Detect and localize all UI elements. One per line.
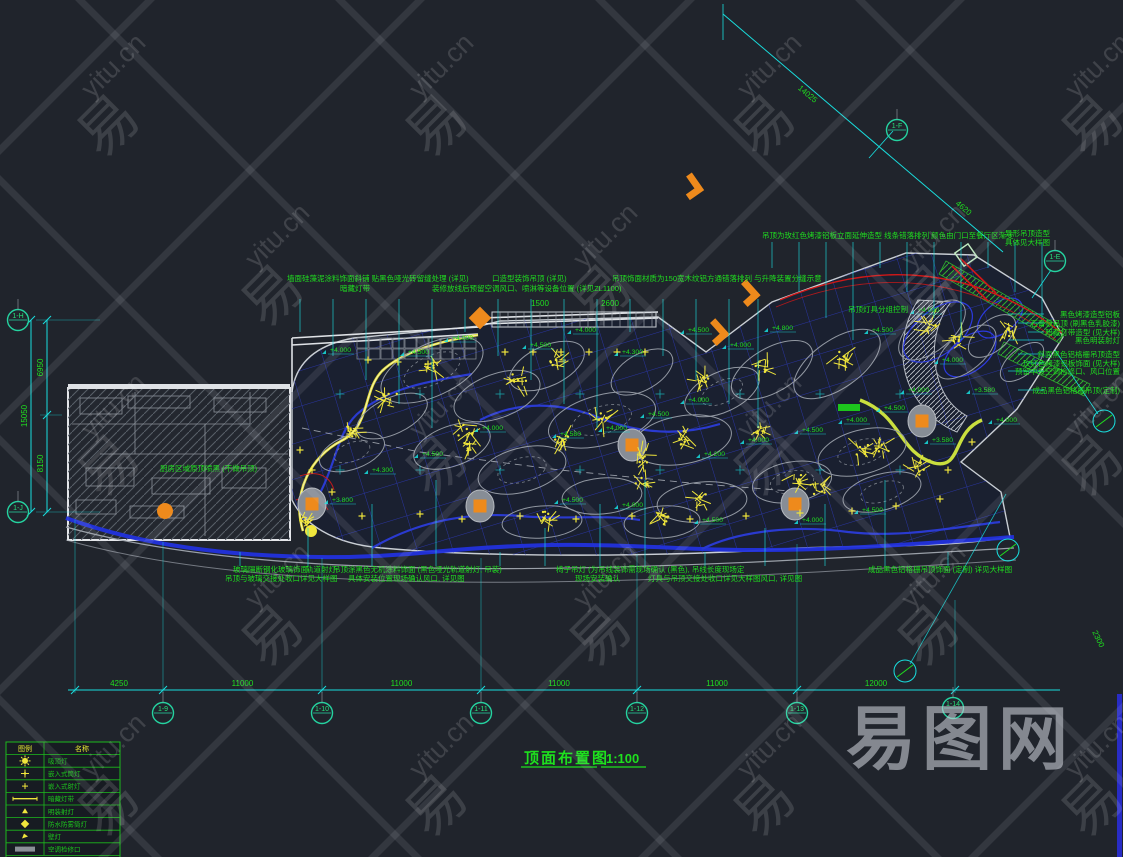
cluster-dot [667, 515, 669, 517]
cluster-dot [663, 523, 665, 525]
elevation-value: +4.800 [772, 325, 793, 332]
cluster-stroke [557, 359, 558, 367]
elevation-value: +4.500 [530, 342, 551, 349]
cluster-dot [698, 496, 700, 498]
cluster-dot [875, 447, 877, 449]
cluster-stroke [810, 484, 819, 485]
drawing-scale: 1:100 [606, 751, 639, 766]
cluster-dot [705, 380, 707, 382]
column-marker [781, 488, 809, 520]
cluster-dot [354, 429, 356, 431]
axis-bubble-label: 1-10 [315, 706, 329, 713]
cluster-dot [813, 493, 815, 495]
elevation-value: +4.000 [482, 425, 503, 432]
cluster-dot [600, 418, 602, 420]
axis-bubble-label: 1-H [12, 313, 23, 320]
ceiling-plan-drawing: 4250110001100011000110001200015050695081… [0, 0, 1123, 857]
column-marker [305, 525, 317, 537]
annotation-text: 异形吊顶造型 [1005, 228, 1050, 238]
cluster-dot [556, 441, 558, 443]
cluster-dot [635, 482, 637, 484]
cluster-stroke [759, 370, 760, 381]
annotation-text: 吊顶为玫红色烤漆铝板立面延伸造型 线条错落排列 颜色由门口至餐厅区渐变 [762, 230, 1014, 240]
cluster-dot [704, 493, 706, 495]
elevation-value: +4.500 [872, 327, 893, 334]
cluster-dot [517, 379, 519, 381]
annotation-text: 黑色明装射灯 [1075, 335, 1120, 345]
legend-label: 嵌入式射灯 [48, 782, 81, 791]
cluster-dot [547, 513, 549, 515]
cluster-dot [643, 455, 645, 457]
elevation-value: +4.500 [884, 405, 905, 412]
elevation-value: +4.300 [622, 349, 643, 356]
cluster-dot [525, 380, 527, 382]
page-title: 顶面布置图 [524, 749, 609, 767]
axis-bubble-label: 1-J [13, 505, 23, 512]
cluster-dot [346, 435, 348, 437]
cluster-dot [462, 424, 464, 426]
cluster-dot [864, 453, 866, 455]
cluster-dot [856, 453, 858, 455]
column-marker [466, 490, 494, 522]
cluster-dot [706, 374, 708, 376]
column-cap-orange [916, 415, 929, 428]
cluster-dot [683, 441, 685, 443]
cluster-dot [881, 444, 883, 446]
cluster-stroke [353, 428, 363, 429]
cluster-stroke [963, 337, 975, 338]
cluster-dot [1007, 327, 1009, 329]
elevation-value: +4.000 [606, 425, 627, 432]
elevation-value: +4.000 [908, 387, 929, 394]
cluster-dot [644, 485, 646, 487]
ceiling-lamp-icon [20, 755, 31, 766]
cluster-dot [554, 438, 556, 440]
cad-viewport: 4250110001100011000110001200015050695081… [0, 0, 1123, 857]
elevation-value: +3.580 [932, 437, 953, 444]
cluster-stroke [645, 455, 657, 456]
cluster-dot [555, 359, 557, 361]
cluster-dot [798, 478, 800, 480]
annotation-text: 斜面黑色铝格栅吊顶造型 [1038, 349, 1121, 359]
cluster-dot [920, 461, 922, 463]
cluster-dot [605, 417, 607, 419]
axis-bubble-label: 1-12 [630, 706, 644, 713]
cluster-dot [821, 490, 823, 492]
cluster-dot [665, 520, 667, 522]
elevation-value: +4.000 [846, 417, 867, 424]
axis-bubble-label: 1-F [892, 123, 903, 130]
cluster-dot [958, 336, 960, 338]
cluster-dot [351, 435, 353, 437]
cluster-dot [432, 367, 434, 369]
cluster-dot [384, 395, 386, 397]
cluster-dot [678, 438, 680, 440]
cluster-dot [549, 517, 551, 519]
cluster-dot [918, 470, 920, 472]
cluster-dot [387, 393, 389, 395]
cluster-dot [878, 450, 880, 452]
dim-label: 8150 [36, 454, 45, 472]
cluster-dot [598, 419, 600, 421]
cluster-dot [347, 426, 349, 428]
legend-label: 空调检修口 [48, 845, 81, 854]
cluster-dot [952, 340, 954, 342]
dim-label: 11000 [391, 679, 413, 688]
cluster-dot [700, 496, 702, 498]
cluster-dot [304, 519, 306, 521]
dim-label: 1500 [531, 299, 549, 308]
cluster-dot [299, 520, 301, 522]
cluster-dot [859, 446, 861, 448]
cluster-stroke [862, 448, 871, 449]
cluster-dot [432, 365, 434, 367]
annotation-text: 厨房区域原顶喷黑 (不做吊顶) [160, 463, 258, 473]
cluster-dot [471, 432, 473, 434]
elevation-value: +4.000 [452, 335, 473, 342]
axis-bubble-label: 1-E [1050, 254, 1061, 261]
elevation-value: +4.500 [862, 507, 883, 514]
equipment-marker [838, 404, 860, 411]
access-panel-icon [15, 847, 35, 852]
elevation-value: +4.500 [648, 411, 669, 418]
cluster-dot [680, 443, 682, 445]
cluster-dot [1008, 335, 1010, 337]
cluster-dot [307, 520, 309, 522]
annotation-text: 吊顶涂黑色无机涂料饰面 (黑色哑光轨道射灯, 吊装) [333, 564, 502, 574]
elevation-value: +4.300 [372, 467, 393, 474]
axis-bubble-label: 1-9 [158, 706, 168, 713]
cluster-dot [707, 377, 709, 379]
cluster-dot [843, 356, 845, 358]
cluster-dot [887, 450, 889, 452]
cluster-dot [551, 364, 553, 366]
cluster-dot [922, 469, 924, 471]
annotation-text: 灯具与吊顶交接处收口详见大样图风口, 详见图 [648, 573, 802, 583]
annotation-text: 吊顶饰面材质为150宽木纹铝方通错落排列 与升降装置分缝示意 [612, 273, 822, 283]
dim-label: 15050 [20, 404, 29, 427]
axis-bubble-label: 1-11 [474, 706, 488, 713]
elevation-value: +4.200 [704, 451, 725, 458]
cluster-dot [468, 443, 470, 445]
cluster-dot [702, 377, 704, 379]
annotation-text: 墙面硅藻泥涂料饰面斜铺 贴黑色哑光砖留缝处理 (详见) [287, 273, 469, 283]
cluster-dot [957, 340, 959, 342]
cluster-dot [683, 430, 685, 432]
elevation-value: +4.500 [688, 327, 709, 334]
cluster-dot [918, 473, 920, 475]
column-cap-orange [789, 498, 802, 511]
cluster-dot [798, 482, 800, 484]
site-logo: 易图网 [846, 700, 1074, 778]
annotation-text: 口造型装饰吊顶 (详见) [492, 273, 567, 283]
elevation-value: +4.000 [688, 397, 709, 404]
elevation-value: +3.800 [332, 497, 353, 504]
elevation-value: +4.580 [560, 431, 581, 438]
cluster-dot [466, 428, 468, 430]
cluster-dot [823, 491, 825, 493]
cluster-dot [542, 511, 544, 513]
cluster-dot [867, 444, 869, 446]
cluster-dot [463, 442, 465, 444]
annotation-text: 预留中央空调检修口、风口位置 [1015, 366, 1120, 376]
column-cap-orange [474, 500, 487, 513]
cluster-dot [657, 512, 659, 514]
cluster-dot [457, 434, 459, 436]
cluster-dot [838, 351, 840, 353]
cluster-dot [466, 443, 468, 445]
cluster-dot [765, 369, 767, 371]
cluster-dot [544, 511, 546, 513]
cluster-dot [396, 393, 398, 395]
dim-label: 12000 [865, 679, 888, 688]
cluster-dot [754, 365, 756, 367]
cluster-dot [1001, 336, 1003, 338]
dim-label: 11000 [706, 679, 728, 688]
cluster-dot [513, 380, 515, 382]
elevation-value: +4.000 [730, 342, 751, 349]
elevation-value: +4.000 [802, 517, 823, 524]
elevation-value: +4.000 [622, 502, 643, 509]
dim-label: 4250 [110, 679, 128, 688]
cluster-dot [640, 477, 642, 479]
yellow-dot [305, 525, 317, 537]
cluster-dot [646, 461, 648, 463]
column-cap-orange [626, 439, 639, 452]
legend-header: 图例 [18, 744, 32, 753]
cluster-dot [600, 412, 602, 414]
annotation-text: 具体见大样图 [1005, 237, 1050, 247]
cluster-dot [466, 448, 468, 450]
column-marker [908, 405, 936, 437]
cluster-dot [511, 373, 513, 375]
cluster-dot [846, 358, 848, 360]
cluster-dot [550, 361, 552, 363]
cluster-dot [638, 461, 640, 463]
annotation-text: 黑色烤漆造型铝板 [1060, 309, 1120, 319]
legend-label: 壁灯 [48, 832, 62, 841]
annotation-text: 石膏板吊顶 (刷黑色乳胶漆) [1030, 318, 1120, 328]
